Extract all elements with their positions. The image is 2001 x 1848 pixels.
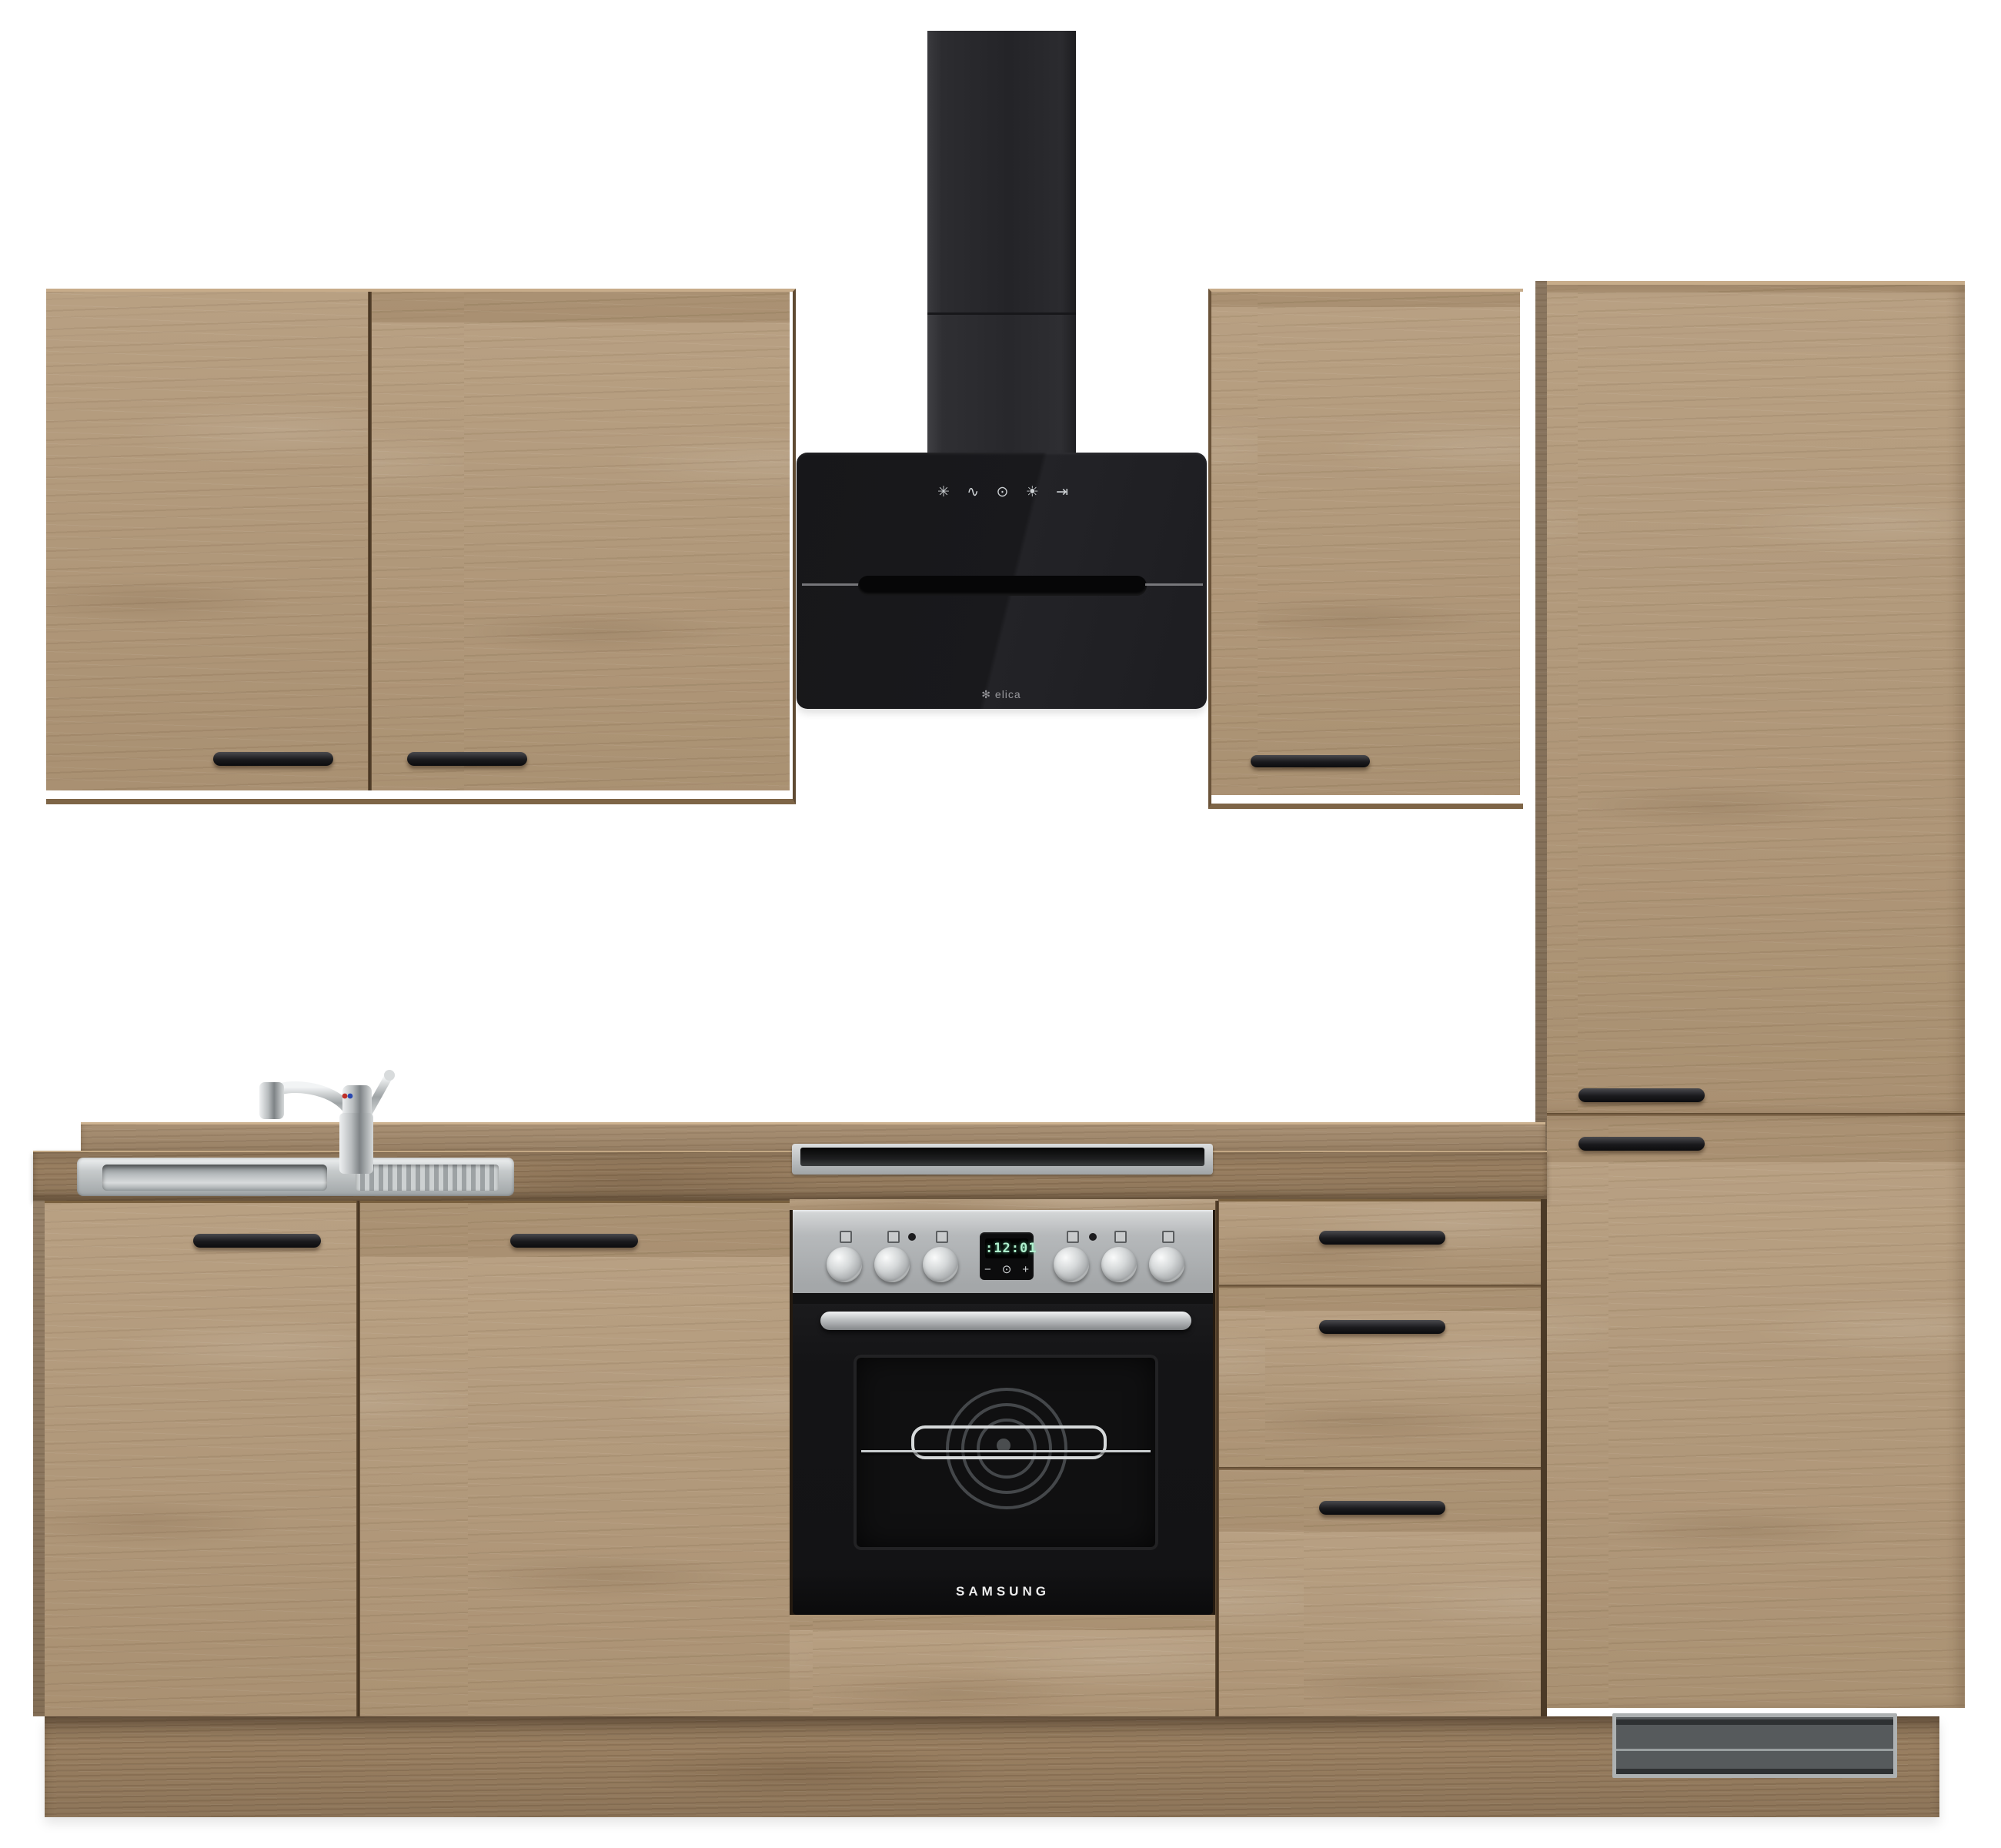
hood-glass-panel: ✳ ∿ ⊙ ☀ ⇥ ✻ elica	[797, 453, 1207, 709]
indicator-light-right	[1089, 1233, 1097, 1241]
oven-knob-1	[827, 1247, 862, 1282]
hood-chimney-lower	[927, 312, 1076, 456]
wall-cabinet-right	[1208, 289, 1523, 809]
knob-function-icon-4	[1067, 1231, 1079, 1243]
cooktop	[792, 1144, 1213, 1175]
oven-brand: SAMSUNG	[885, 1584, 1121, 1599]
faucet	[223, 1039, 408, 1178]
power-icon: ⊙	[996, 483, 1008, 501]
tall-cabinet	[1547, 281, 1965, 1716]
base-door-2	[360, 1201, 790, 1719]
oven-knob-6	[1149, 1247, 1184, 1282]
base-door1-handle	[193, 1234, 321, 1248]
wall-cabinet-left	[46, 289, 796, 804]
knob-function-icon-2	[887, 1231, 900, 1243]
knob-function-icon-3	[936, 1231, 948, 1243]
elica-logo-icon: ✻	[981, 688, 991, 700]
oven-knob-4	[1054, 1247, 1089, 1282]
oven-minus-button: −	[984, 1263, 991, 1276]
hood-vent-slot	[858, 576, 1147, 596]
wall-door2-handle	[407, 752, 527, 766]
oven-rack-wire-handle	[911, 1425, 1107, 1459]
oven-knob-5	[1101, 1247, 1137, 1282]
faucet-spout-head	[259, 1082, 284, 1119]
oven-rack	[861, 1450, 1151, 1452]
oven-display: :12:01	[985, 1238, 1028, 1258]
oven-panel-gap	[793, 1293, 1213, 1304]
oven-display-buttons: − ⊙ +	[984, 1262, 1029, 1277]
tall-lower-door-handle	[1578, 1137, 1705, 1151]
oven-knob-3	[923, 1247, 958, 1282]
oven-control-panel: :12:01 − ⊙ +	[793, 1210, 1213, 1293]
oven-power-button: ⊙	[1002, 1262, 1012, 1276]
wall-door1-handle	[213, 752, 333, 766]
hood-vent-slot-line-left	[802, 583, 860, 586]
indicator-light-left	[908, 1233, 916, 1241]
knob-function-icon-1	[840, 1231, 852, 1243]
oven-display-time: 12:01	[994, 1241, 1037, 1256]
oven-handle	[820, 1312, 1191, 1330]
hood-vent-slot-line-right	[1145, 583, 1203, 586]
wall-cabinet-right-door	[1211, 292, 1520, 795]
fan-speed-icon: ✳	[937, 483, 950, 501]
timer-icon: ⇥	[1056, 483, 1068, 501]
tall-cabinet-upper-door	[1547, 285, 1965, 1113]
wall-cabinet-left-door-2	[372, 292, 790, 790]
drawer-unit	[1219, 1199, 1541, 1719]
kitchen-scene: ✳ ∿ ⊙ ☀ ⇥ ✻ elica	[0, 0, 2001, 1848]
light-icon: ☀	[1026, 483, 1039, 501]
drawer2-handle	[1319, 1320, 1445, 1334]
oven-filler-bottom	[790, 1615, 1218, 1716]
oven-knob-2	[874, 1247, 910, 1282]
drawer3-handle	[1319, 1501, 1445, 1515]
wall-cabinet-left-door-1	[46, 292, 368, 790]
faucet-column	[339, 1113, 373, 1174]
oven-display-indicator: :	[985, 1241, 994, 1256]
oven-door: SAMSUNG	[793, 1304, 1213, 1615]
cold-indicator-dot	[348, 1094, 353, 1099]
drawer-tall-gap	[1541, 1199, 1547, 1716]
boost-icon: ∿	[967, 483, 979, 501]
hood-brand-text: elica	[995, 688, 1021, 700]
oven-door-window	[854, 1355, 1158, 1550]
hood-touch-controls: ✳ ∿ ⊙ ☀ ⇥	[937, 479, 1068, 505]
drawer1-handle	[1319, 1231, 1445, 1245]
tall-upper-door-handle	[1578, 1088, 1705, 1102]
base-left-side-panel	[33, 1201, 45, 1716]
faucet-lever-knob	[384, 1070, 395, 1081]
oven-housing: :12:01 − ⊙ + SAMSUNG	[790, 1199, 1218, 1716]
vent-grille	[1612, 1713, 1897, 1778]
base-door-1	[45, 1201, 356, 1719]
knob-function-icon-6	[1162, 1231, 1174, 1243]
hot-indicator-dot	[342, 1094, 348, 1099]
hood-brand: ✻ elica	[924, 688, 1078, 701]
drawer-2	[1219, 1288, 1541, 1467]
oven-filler-top	[790, 1199, 1218, 1210]
base-door2-handle	[510, 1234, 638, 1248]
tall-cabinet-lower-door	[1547, 1116, 1965, 1708]
oven-plus-button: +	[1022, 1263, 1029, 1276]
hood-chimney-upper	[927, 31, 1076, 312]
wall-right-door-handle	[1251, 755, 1370, 767]
oven-display-module: :12:01 − ⊙ +	[980, 1232, 1034, 1280]
knob-function-icon-5	[1114, 1231, 1127, 1243]
cooktop-glass	[800, 1148, 1204, 1166]
